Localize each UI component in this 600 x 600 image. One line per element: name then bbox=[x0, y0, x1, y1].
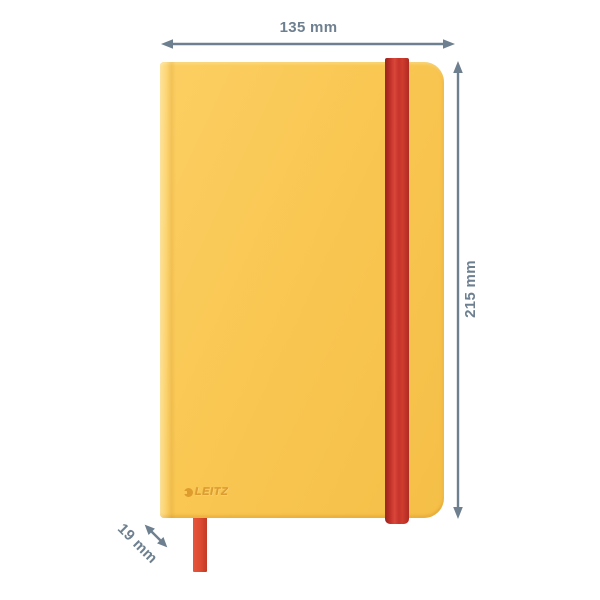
height-dimension-arrow-icon bbox=[451, 60, 465, 520]
elastic-band bbox=[385, 58, 409, 524]
product-render: 135 mm 215 mm 19 mm LEITZ bbox=[0, 0, 600, 600]
ribbon-bookmark bbox=[193, 510, 207, 572]
leitz-logo-mark-icon bbox=[184, 488, 193, 497]
width-dimension-arrow-icon bbox=[160, 37, 456, 51]
leitz-logo-text: LEITZ bbox=[195, 486, 229, 498]
width-dimension-label: 135 mm bbox=[162, 19, 455, 36]
leitz-logo: LEITZ bbox=[184, 485, 229, 499]
spine-edge bbox=[160, 62, 176, 518]
